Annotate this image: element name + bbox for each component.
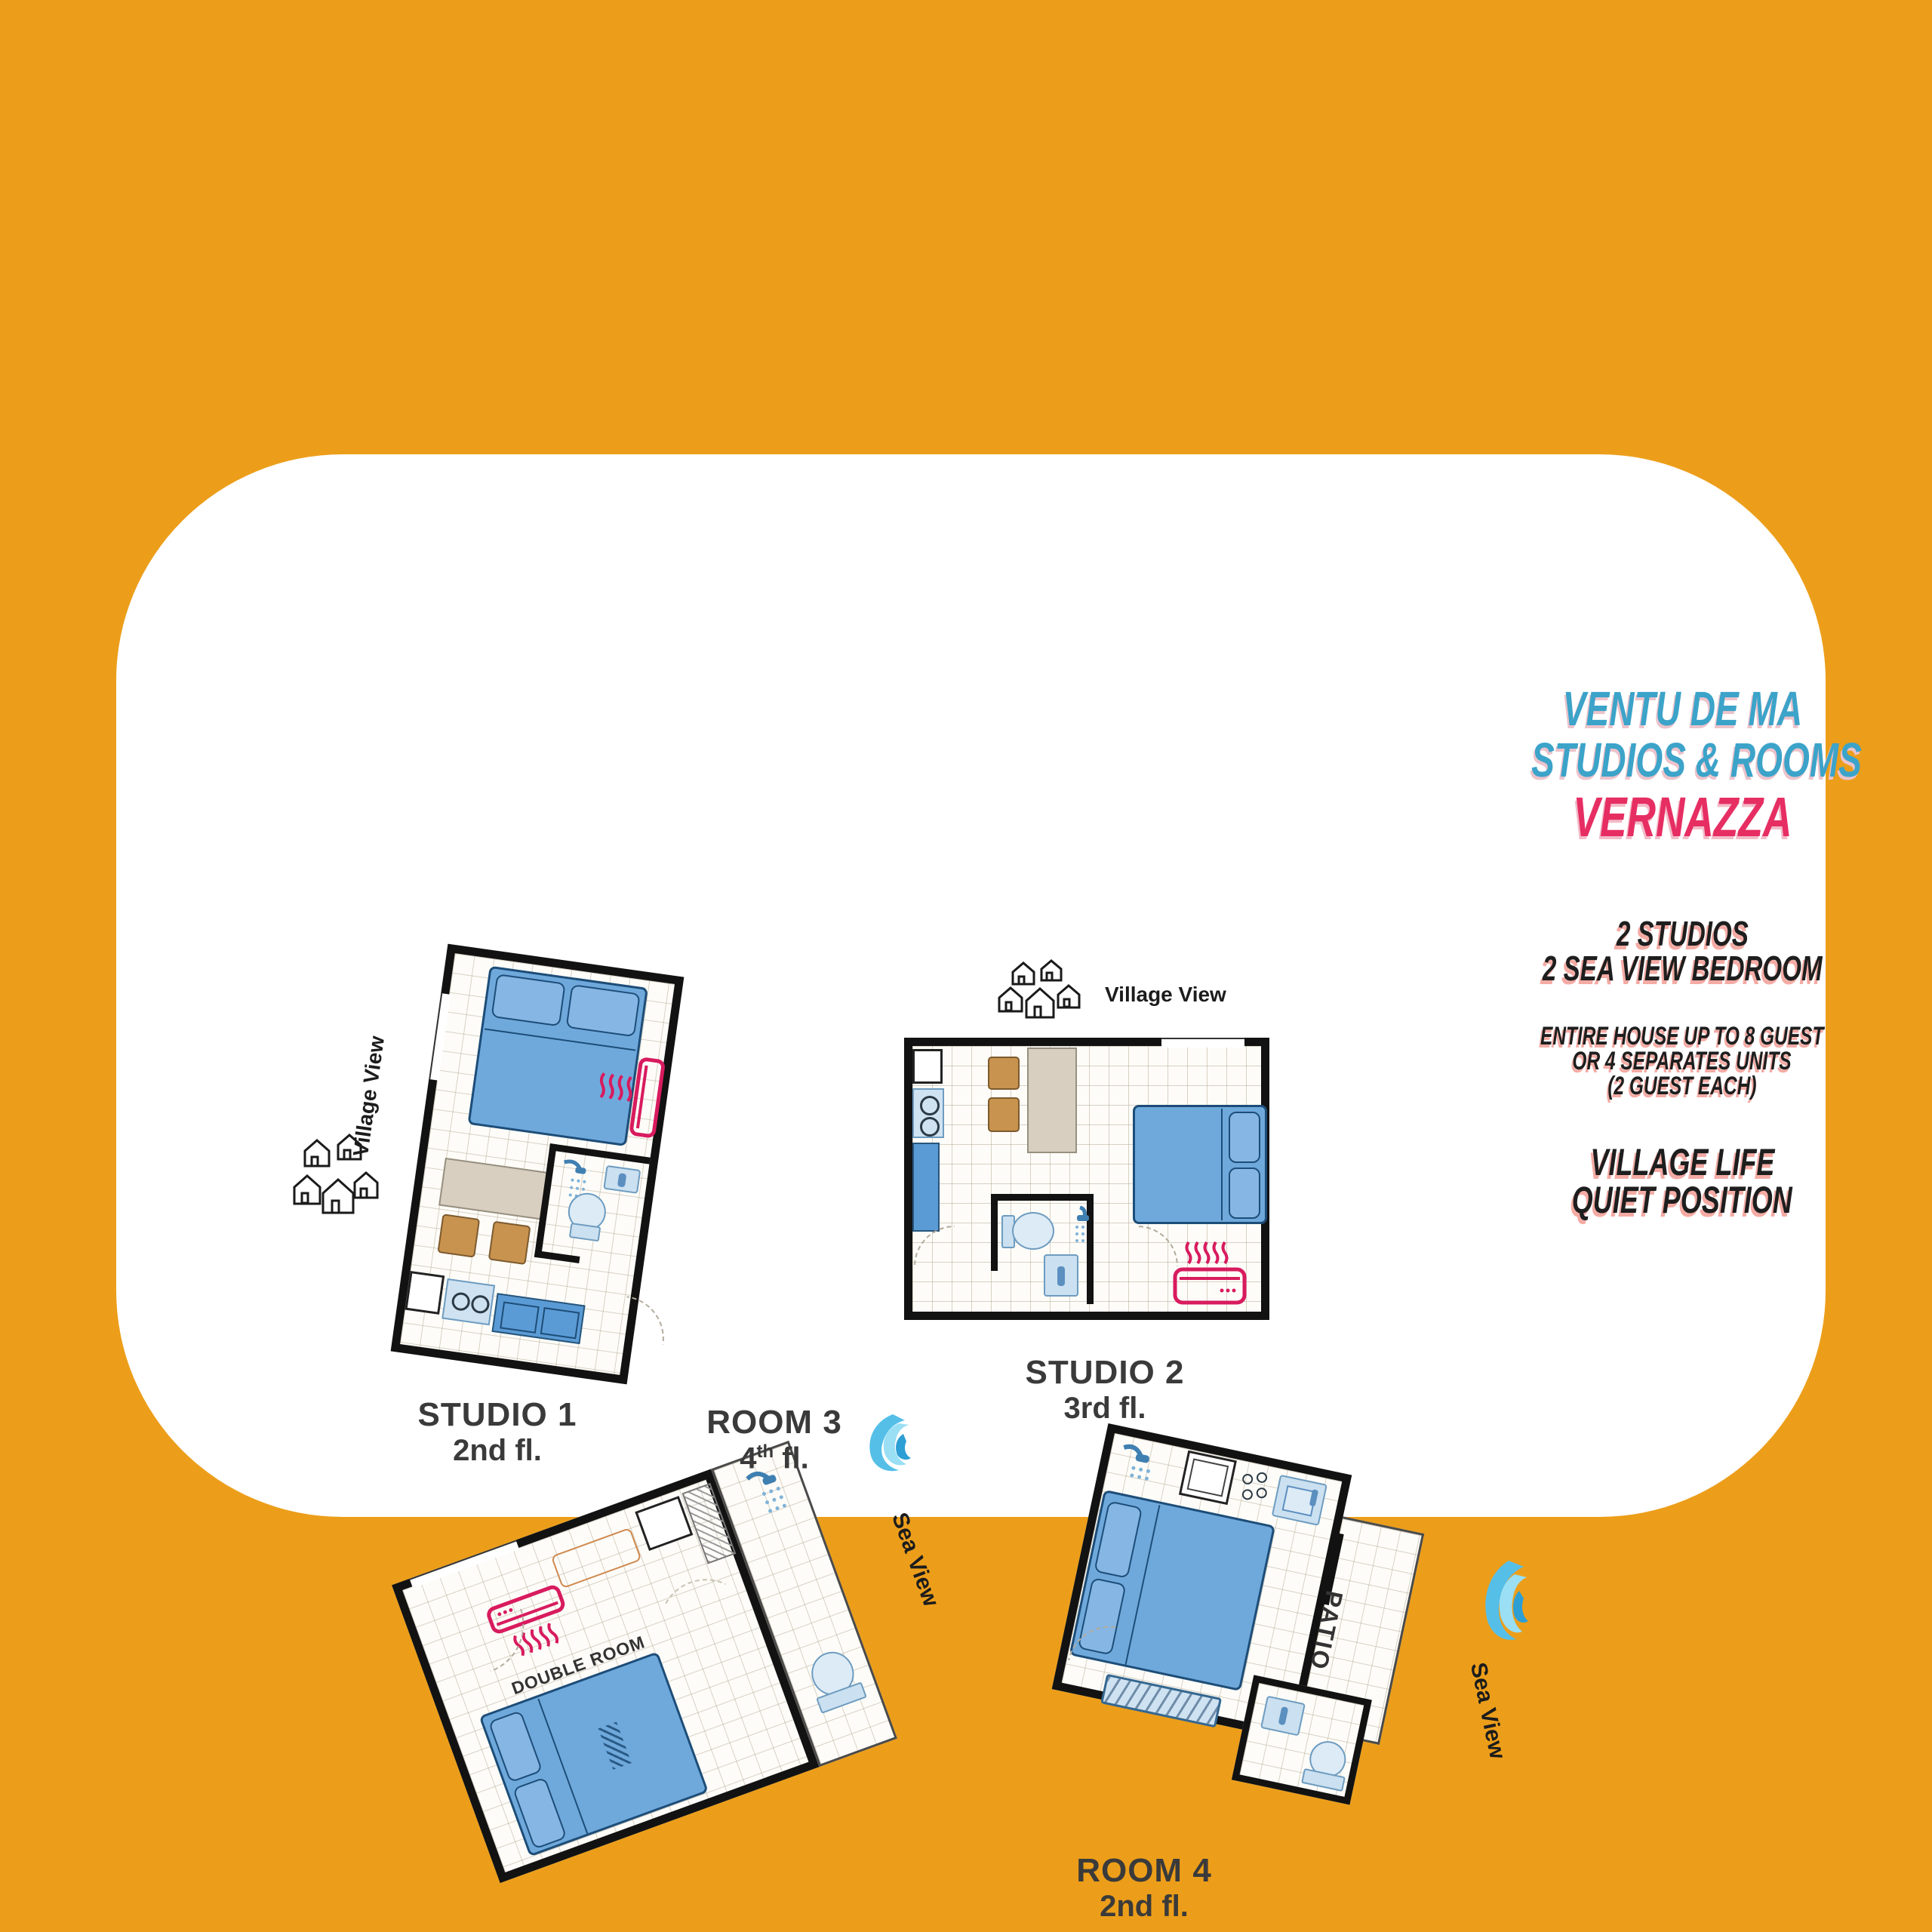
wave-icon [1478, 1558, 1531, 1645]
bathroom [534, 1143, 651, 1271]
stove-icon [441, 1278, 495, 1325]
room-name: STUDIO 1 [418, 1396, 577, 1434]
side-table [635, 1496, 693, 1551]
sink-icon [1272, 1475, 1327, 1526]
chair [437, 1214, 480, 1257]
oven [1179, 1451, 1237, 1505]
floorplan-poster: STUDIO 1 2nd fl. Village View [0, 0, 1932, 1932]
shower-icon [1109, 1439, 1167, 1497]
room-name: ROOM 3 [706, 1404, 842, 1441]
chair [988, 1057, 1020, 1090]
room3-label: ROOM 3 4th fl. [706, 1404, 842, 1475]
pillow [488, 1710, 543, 1783]
door-swing-arc [573, 1290, 670, 1387]
pillow [491, 974, 566, 1026]
title-line2: STUDIOS & ROOMS [1467, 732, 1897, 788]
capacity-block: 2 STUDIOS 2 SEA VIEW BEDROOM ENTIRE HOUS… [1467, 913, 1897, 1222]
room4-view-label: Sea View [1465, 1660, 1510, 1761]
room-floor: 2nd fl. [1076, 1890, 1212, 1924]
room-floor: 2nd fl. [418, 1434, 577, 1468]
door-swing-arc [1097, 1226, 1178, 1307]
pillow [1229, 1168, 1260, 1219]
room4-label: ROOM 4 2nd fl. [1076, 1852, 1212, 1924]
bench [551, 1527, 642, 1589]
stove-icon [912, 1088, 944, 1138]
studio1-label: STUDIO 1 2nd fl. [418, 1396, 577, 1468]
window-marker [429, 993, 451, 1081]
sink-icon [1260, 1696, 1306, 1737]
heater-icon [1172, 1241, 1247, 1309]
cooktop [1232, 1465, 1275, 1510]
studio2-view-label: Village View [1105, 983, 1226, 1007]
kitchen-counter [912, 1143, 940, 1232]
floorplan-studio1 [391, 944, 685, 1385]
title-line3: VERNAZZA [1467, 785, 1897, 849]
floorplan-room3: DOUBLE ROOM [392, 1441, 897, 1883]
pillow [566, 984, 641, 1037]
room-name: ROOM 4 [1076, 1852, 1212, 1890]
room-name: STUDIO 2 [1026, 1354, 1185, 1392]
sink-icon [603, 1165, 641, 1194]
pillow [1094, 1500, 1143, 1578]
title-block: VENTU DE MA STUDIOS & ROOMS VERNAZZA [1467, 681, 1897, 849]
bathroom [991, 1194, 1094, 1304]
kitchen-sink-counter [491, 1293, 585, 1344]
dining-table [438, 1158, 549, 1220]
shower-icon [1057, 1203, 1091, 1248]
village-line2: QUIET POSITION [1467, 1178, 1897, 1222]
window-marker [410, 1540, 519, 1589]
room3-view-label: Sea View [886, 1509, 943, 1610]
chair [988, 1097, 1020, 1132]
chair [488, 1221, 531, 1265]
fridge-icon [912, 1049, 943, 1084]
pillow [1229, 1112, 1260, 1163]
room-floor: 4th fl. [706, 1441, 842, 1475]
bed-fold-line [1221, 1109, 1223, 1220]
floorplan-room4: PATIO [1041, 1423, 1433, 1810]
door-swing-arc [914, 1226, 995, 1307]
floorplan-studio2 [904, 1038, 1269, 1320]
white-panel: STUDIO 1 2nd fl. Village View [116, 454, 1826, 1517]
double-bed [1133, 1105, 1267, 1224]
sink-icon [1044, 1254, 1078, 1297]
studio1-view-label: Village View [349, 1035, 389, 1158]
wave-icon [860, 1411, 920, 1475]
fridge-icon [405, 1271, 445, 1315]
bedrooms-count: 2 SEA VIEW BEDROOM [1467, 948, 1897, 989]
studio2-label: STUDIO 2 3rd fl. [1026, 1354, 1185, 1426]
title-line1: VENTU DE MA [1467, 681, 1897, 737]
window-marker [1161, 1038, 1244, 1048]
village-houses-icon [998, 958, 1096, 1025]
ac-unit-icon [589, 1050, 669, 1142]
bed-runner [598, 1721, 632, 1769]
dining-table [1027, 1048, 1077, 1153]
room-floor: 3rd fl. [1026, 1392, 1185, 1426]
pillow [512, 1777, 568, 1850]
